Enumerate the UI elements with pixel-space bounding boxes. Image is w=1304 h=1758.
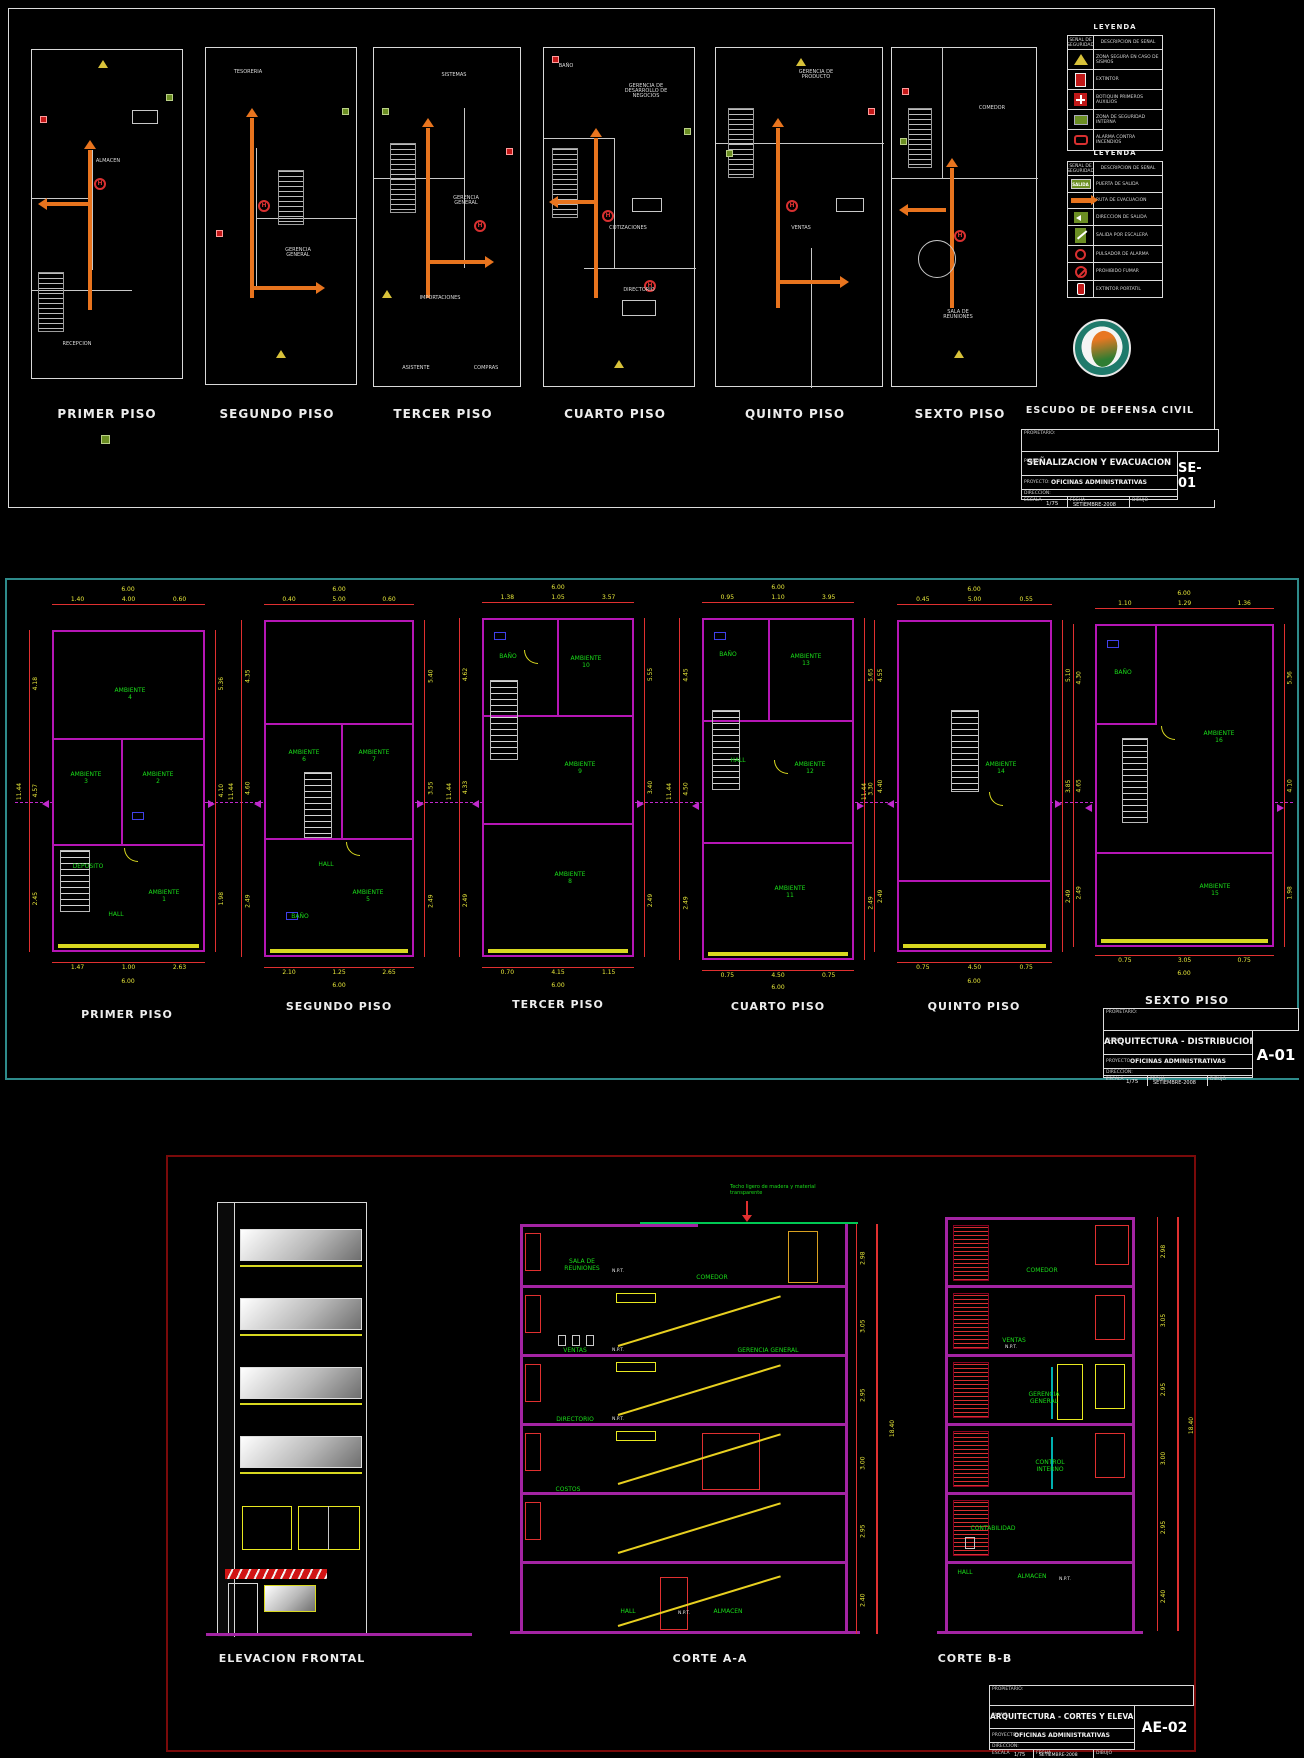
extintor-icon bbox=[1068, 70, 1094, 89]
plan-title-tercer-piso: TERCER PISO bbox=[393, 407, 492, 421]
evac-plan-tercer-piso: H SISTEMAS GERENCIA GENERAL IMPORTACIONE… bbox=[373, 47, 521, 387]
tb-plano-label: PLANO: bbox=[1106, 1038, 1123, 1043]
sill-line bbox=[240, 1265, 362, 1267]
wall-partition bbox=[266, 838, 412, 840]
view-title-corte-aa: CORTE A-A bbox=[673, 1652, 748, 1665]
room-label: GERENCIA GENERAL bbox=[738, 1348, 799, 1355]
room-label: AMBIENTE 2 bbox=[140, 772, 176, 785]
dim-value: 2.98 bbox=[1129, 1246, 1198, 1257]
tb-propietario-label: PROPIETARIO: bbox=[1106, 1010, 1137, 1015]
fixture bbox=[1107, 640, 1119, 648]
section-marker bbox=[472, 800, 479, 808]
legend-desc: BOTIQUIN PRIMEROS AUXILIOS bbox=[1094, 94, 1162, 106]
dim-value: 0.70 bbox=[482, 970, 533, 976]
alarma-icon bbox=[1068, 130, 1094, 150]
legend-col-desc: DESCRIPCION DE SEÑAL bbox=[1094, 165, 1162, 172]
zona-segura-sign-icon bbox=[98, 60, 108, 68]
room-label: BAÑO bbox=[291, 914, 308, 921]
window-section bbox=[1095, 1295, 1125, 1340]
plan-title-sexto-piso: SEXTO PISO bbox=[1145, 994, 1229, 1007]
room-label: BAÑO bbox=[559, 64, 574, 69]
dim-value: 0.45 bbox=[897, 597, 949, 605]
room-label: GERENCIA GENERAL bbox=[276, 248, 320, 258]
room-label: AMBIENTE 12 bbox=[792, 762, 828, 775]
room-label: ASISTENTE bbox=[402, 366, 429, 371]
tb-propietario-row: PROPIETARIO: bbox=[990, 1686, 1193, 1706]
evac-arrowhead bbox=[422, 118, 434, 127]
floor-slab bbox=[945, 1492, 1135, 1495]
tb-plano-label: PLANO: bbox=[992, 1713, 1009, 1718]
chair-section bbox=[586, 1335, 594, 1346]
room-label: BAÑO bbox=[719, 652, 736, 659]
door-swing bbox=[989, 792, 1003, 806]
zona-segura-sign-icon bbox=[614, 360, 624, 368]
dim-total-left: 11.44 bbox=[666, 783, 673, 800]
room-label: BAÑO bbox=[499, 654, 516, 661]
legend-desc: RUTA DE EVACUACION bbox=[1094, 197, 1162, 204]
legend-row: RUTA DE EVACUACION bbox=[1068, 193, 1162, 209]
dim-value: 2.40 bbox=[828, 1594, 896, 1605]
door-swing bbox=[346, 842, 360, 856]
hidrante-symbol: H bbox=[94, 178, 106, 190]
evac-plan-sexto-piso: H COMEDOR SALA DE REUNIONES bbox=[891, 47, 1037, 387]
tb-fecha-value: SETIEMBRE-2008 bbox=[1073, 502, 1116, 508]
plan-title-sexto-piso: SEXTO PISO bbox=[915, 407, 1006, 421]
wall-partition bbox=[1097, 723, 1157, 725]
plan-title-cuarto-piso: CUARTO PISO bbox=[731, 1000, 825, 1013]
dim-value: 1.29 bbox=[1155, 601, 1215, 609]
dim-value: 2.10 bbox=[264, 970, 314, 976]
tb-direccion-label: DIRECCION: bbox=[1106, 1070, 1133, 1075]
floor-slab bbox=[945, 1561, 1135, 1564]
wall-partition bbox=[557, 620, 559, 715]
room-label: GERENCIA GENERAL bbox=[444, 196, 488, 206]
dim-value: 0.55 bbox=[1000, 597, 1052, 605]
dim-value: 4.33 bbox=[409, 782, 522, 793]
plan-title-quinto-piso: QUINTO PISO bbox=[928, 1000, 1021, 1013]
wall-partition bbox=[341, 723, 343, 838]
legend-desc: SALIDA POR ESCALERA bbox=[1094, 232, 1162, 239]
tb-escala-value: 1/75 bbox=[1126, 1079, 1138, 1085]
fixture bbox=[714, 632, 726, 640]
escudo-defensa-civil-logo bbox=[1073, 319, 1131, 377]
dim-value: 3.05 bbox=[1129, 1315, 1198, 1326]
stairs bbox=[490, 680, 518, 760]
evac-route-arrow bbox=[426, 128, 430, 298]
entry-door bbox=[228, 1583, 258, 1634]
room-label: SISTEMAS bbox=[442, 73, 467, 78]
legend-desc: EXTINTOR bbox=[1094, 76, 1162, 83]
second-floor-window bbox=[242, 1506, 292, 1550]
corte-bb-drawing: COMEDOR VENTAS GERENCIA GENERAL CONTROL … bbox=[945, 1217, 1195, 1642]
dim-value: 1.05 bbox=[533, 595, 584, 603]
evac-arrowhead bbox=[590, 128, 602, 137]
npt-label: N.P.T. bbox=[612, 1348, 624, 1353]
tb-propietario-row: PROPIETARIO: bbox=[1104, 1009, 1298, 1031]
dim-rail-left: 4.454.502.49 bbox=[679, 618, 691, 960]
chair-section bbox=[572, 1335, 580, 1346]
dim-total-top: 6.00 bbox=[332, 586, 345, 593]
plan-title-cuarto-piso: CUARTO PISO bbox=[564, 407, 666, 421]
stair-flight bbox=[618, 1575, 781, 1627]
tb-plano-value: ARQUITECTURA - CORTES Y ELEVACION bbox=[990, 1712, 1134, 1721]
dim-rail-top: 1.381.053.57 bbox=[482, 602, 634, 603]
dim-value: 2.95 bbox=[1129, 1384, 1198, 1395]
room-label: HALL bbox=[318, 862, 333, 869]
sill-line bbox=[240, 1334, 362, 1336]
salida-sign-icon bbox=[726, 150, 733, 157]
floor-slab bbox=[945, 1354, 1135, 1357]
zona-segura-sign-icon bbox=[276, 350, 286, 358]
tb-escala-label: ESCALA bbox=[1024, 498, 1042, 503]
note-arrowhead bbox=[742, 1215, 752, 1222]
stairs bbox=[728, 108, 754, 178]
recycle-icon bbox=[101, 435, 110, 444]
prohibido-fumar-icon bbox=[1068, 263, 1094, 280]
room-label: AMBIENTE 11 bbox=[772, 886, 808, 899]
dim-value: 4.10 bbox=[1237, 780, 1304, 791]
base-slab bbox=[937, 1631, 1143, 1634]
titleblock-se01: PROPIETARIO: PLANO:SEÑALIZACION Y EVACUA… bbox=[1021, 429, 1219, 500]
legend-senal-title: LEYENDA bbox=[1093, 149, 1136, 157]
room-label: GERENCIA DE PRODUCTO bbox=[794, 70, 838, 80]
dim-value: 2.49 bbox=[409, 895, 522, 906]
tb-dibujo-label: DIBUJO bbox=[1210, 1077, 1226, 1082]
room-label: AMBIENTE 7 bbox=[356, 750, 392, 763]
dim-rail-bottom: 0.754.500.75 bbox=[702, 970, 854, 979]
salida-badge-icon: SALIDA bbox=[1068, 176, 1094, 192]
dim-rail-right: 5.364.101.98 bbox=[1284, 624, 1296, 947]
dim-value: 2.95 bbox=[1129, 1522, 1198, 1533]
npt-label: N.P.T. bbox=[612, 1417, 624, 1422]
facade-wall bbox=[903, 944, 1046, 948]
wall-segment bbox=[811, 248, 812, 388]
dim-value: 1.10 bbox=[753, 595, 804, 603]
dim-rail-top: 0.455.000.55 bbox=[897, 604, 1052, 605]
ruta-evacuacion-icon bbox=[1068, 193, 1094, 208]
dim-rail-left: 4.354.602.49 bbox=[241, 620, 253, 957]
hidrante-symbol: H bbox=[474, 220, 486, 232]
legend-row: EXTINTOR bbox=[1068, 70, 1162, 90]
dim-value: 0.40 bbox=[264, 597, 314, 605]
stair-flight bbox=[618, 1295, 781, 1347]
dim-value: 2.63 bbox=[154, 965, 205, 971]
dim-value: 1.36 bbox=[1214, 601, 1274, 609]
tb-fecha-value: SETIEMBRE-2008 bbox=[1153, 1080, 1196, 1086]
dim-rail-bottom: 0.704.151.15 bbox=[482, 967, 634, 976]
sheet-a01: AMBIENTE 4 AMBIENTE 3 AMBIENTE 2 DEPOSIT… bbox=[5, 578, 1299, 1080]
dim-value: 0.75 bbox=[1214, 958, 1274, 964]
tb-direccion-label: DIRECCION: bbox=[1024, 491, 1051, 496]
dim-value: 1.00 bbox=[103, 965, 154, 971]
room-label: CONTROL INTERNO bbox=[1032, 1460, 1068, 1473]
room-label: AMBIENTE 16 bbox=[1201, 731, 1237, 744]
railing bbox=[616, 1362, 656, 1372]
section-marker bbox=[417, 800, 424, 808]
dim-value: 0.95 bbox=[702, 595, 753, 603]
wall-segment bbox=[892, 178, 1038, 179]
dim-value: 5.00 bbox=[314, 597, 364, 605]
dim-total-top: 6.00 bbox=[967, 586, 980, 593]
dim-value: 3.00 bbox=[1129, 1453, 1198, 1464]
botiquin-sign-icon bbox=[216, 230, 223, 237]
dim-value: 4.30 bbox=[1026, 672, 1134, 683]
room-label: ALMACEN bbox=[1017, 1574, 1046, 1581]
dim-rail-top: 1.404.000.60 bbox=[52, 604, 205, 605]
roof-note: Techo ligero de madera y material transp… bbox=[730, 1185, 822, 1196]
storefront-window bbox=[264, 1585, 316, 1612]
legend-desc: PUERTA DE SALIDA bbox=[1094, 181, 1162, 188]
railing bbox=[616, 1293, 656, 1303]
room-label: AMBIENTE 8 bbox=[552, 872, 588, 885]
legend-header-row: SEÑAL DE SEGURIDAD DESCRIPCION DE SEÑAL bbox=[1068, 36, 1162, 50]
plan-title-primer-piso: PRIMER PISO bbox=[81, 1008, 173, 1021]
hidrante-symbol: H bbox=[786, 200, 798, 212]
tb-plano-value: SEÑALIZACION Y EVACUACION bbox=[1022, 458, 1176, 468]
floor-slab bbox=[945, 1423, 1135, 1426]
dim-rail-left: 4.624.332.49 bbox=[459, 618, 471, 957]
salida-sign-icon bbox=[342, 108, 349, 115]
room-label: COTIZACIONES bbox=[609, 226, 647, 231]
legend-desc: EXTINTOR PORTATIL bbox=[1094, 286, 1162, 293]
legend-row: ZONA DE SEGURIDAD INTERNA bbox=[1068, 110, 1162, 130]
dim-rail-bottom: 1.471.002.63 bbox=[52, 962, 205, 971]
dim-value: 1.40 bbox=[52, 597, 103, 605]
evac-arrowhead bbox=[772, 118, 784, 127]
legend-desc: PROHIBIDO FUMAR bbox=[1094, 268, 1162, 275]
dim-value: 4.40 bbox=[825, 781, 936, 792]
facade-wall bbox=[708, 952, 848, 956]
wall-segment bbox=[464, 108, 465, 268]
tb-plano-label: PLANO: bbox=[1024, 459, 1041, 464]
room-label: COSTOS bbox=[556, 1487, 581, 1494]
dim-value: 4.45 bbox=[629, 670, 743, 681]
pulsador-alarma-icon bbox=[1068, 246, 1094, 262]
window-section bbox=[525, 1364, 541, 1402]
facade-wall bbox=[488, 949, 628, 953]
room-label: HALL bbox=[108, 912, 123, 919]
room-label: SALA DE REUNIONES bbox=[936, 310, 980, 320]
room-label: COMEDOR bbox=[1026, 1268, 1057, 1275]
section-marker bbox=[637, 800, 644, 808]
evac-arrowhead bbox=[840, 276, 849, 288]
room-label: COMEDOR bbox=[696, 1275, 727, 1282]
room-label: IMPORTACIONES bbox=[420, 296, 461, 301]
desk bbox=[632, 198, 662, 212]
evac-route-arrow bbox=[46, 202, 88, 206]
sheet-code-se01: SE-01 bbox=[1177, 452, 1219, 500]
facade-wall bbox=[58, 944, 199, 948]
tb-direccion-label: DIRECCION: bbox=[992, 1744, 1019, 1749]
direccion-salida-icon bbox=[1068, 209, 1094, 225]
room-label: AMBIENTE 13 bbox=[788, 654, 824, 667]
dim-rail-top: 0.951.103.95 bbox=[702, 602, 854, 603]
section-marker bbox=[1085, 804, 1092, 812]
dim-value: 1.98 bbox=[1237, 888, 1304, 899]
dim-value: 2.98 bbox=[828, 1253, 896, 1264]
tb-proyecto-label: PROYECTO: bbox=[992, 1733, 1018, 1738]
tb-escala-cell: ESCALA1/75 bbox=[990, 1750, 1034, 1758]
dim-total-bottom: 6.00 bbox=[551, 982, 564, 989]
stairs bbox=[908, 108, 932, 168]
dim-total-top: 6.00 bbox=[771, 584, 784, 591]
legend-col-symbol: SEÑAL DE SEGURIDAD bbox=[1068, 36, 1094, 49]
tb-escala-cell: ESCALA1/75 bbox=[1022, 497, 1068, 508]
legend-row: SALIDA POR ESCALERA bbox=[1068, 226, 1162, 246]
dim-value: 2.45 bbox=[0, 893, 89, 904]
dim-total-bottom: 6.00 bbox=[967, 978, 980, 985]
legend-col-symbol: SEÑAL DE SEGURIDAD bbox=[1068, 162, 1094, 175]
hidrante-symbol: H bbox=[258, 200, 270, 212]
evac-route-arrow bbox=[556, 200, 594, 204]
stairs bbox=[951, 710, 979, 792]
legend-header-row: SEÑAL DE SEGURIDAD DESCRIPCION DE SEÑAL bbox=[1068, 162, 1162, 176]
botiquin-sign-icon bbox=[552, 56, 559, 63]
npt-label: N.P.T. bbox=[678, 1611, 690, 1616]
elevacion-frontal-drawing bbox=[217, 1202, 367, 1636]
dim-value: 5.36 bbox=[1237, 672, 1304, 683]
zona-segura-sign-icon bbox=[796, 58, 806, 66]
sheet-ae02: SALA DE REUNIONES COMEDOR VENTAS GERENCI… bbox=[166, 1155, 1196, 1752]
railing bbox=[616, 1431, 656, 1441]
zona-seguridad-icon bbox=[1068, 110, 1094, 129]
meeting-table bbox=[622, 300, 656, 316]
dim-value: 0.75 bbox=[1000, 965, 1052, 971]
dim-value: 1.47 bbox=[52, 965, 103, 971]
tb-proyecto-label: PROYECTO: bbox=[1024, 480, 1050, 485]
room-label: AMBIENTE 10 bbox=[568, 656, 604, 669]
legend-row: DIRECCION DE SALIDA bbox=[1068, 209, 1162, 226]
titleblock-ae02: PROPIETARIO: PLANO:ARQUITECTURA - CORTES… bbox=[989, 1685, 1194, 1750]
window-band bbox=[240, 1298, 362, 1330]
legend-evac-table: SEÑAL DE SEGURIDAD DESCRIPCION DE SEÑAL … bbox=[1067, 35, 1163, 151]
desk bbox=[132, 110, 158, 124]
wall-partition bbox=[266, 723, 412, 725]
window-section bbox=[1095, 1364, 1125, 1409]
top-slab bbox=[945, 1217, 1135, 1220]
dim-total-left: 11.44 bbox=[861, 783, 868, 800]
dim-total-bottom: 6.00 bbox=[121, 978, 134, 985]
wall-segment bbox=[374, 178, 464, 179]
npt-label: N.P.T. bbox=[612, 1269, 624, 1274]
stair-flight bbox=[618, 1502, 781, 1554]
stairs bbox=[390, 143, 416, 213]
door-section bbox=[788, 1231, 818, 1283]
level-total-line bbox=[876, 1224, 878, 1634]
zona-segura-icon bbox=[1068, 50, 1094, 69]
legend-row: ZONA SEGURA EN CASO DE SISMOS bbox=[1068, 50, 1162, 70]
top-slab bbox=[520, 1224, 698, 1227]
wall-segment bbox=[942, 48, 943, 178]
dim-value: 3.95 bbox=[803, 595, 854, 603]
window-band bbox=[240, 1229, 362, 1261]
dim-value: 4.50 bbox=[949, 965, 1001, 971]
room-label: AMBIENTE 15 bbox=[1197, 884, 1233, 897]
chair-section bbox=[558, 1335, 566, 1346]
section-marker bbox=[887, 800, 894, 808]
room-label: COMEDOR bbox=[979, 106, 1005, 111]
tb-fecha-cell: FECHASETIEMBRE-2008 bbox=[1068, 497, 1130, 508]
room-label: VENTAS bbox=[791, 226, 811, 231]
ground-line bbox=[206, 1633, 472, 1636]
evac-arrowhead bbox=[38, 198, 47, 210]
tb-proyecto-label: PROYECTO: bbox=[1106, 1059, 1132, 1064]
room-label: AMBIENTE 14 bbox=[983, 762, 1019, 775]
base-slab bbox=[510, 1631, 860, 1634]
wall-partition bbox=[768, 620, 770, 720]
dim-total-left: 11.44 bbox=[16, 783, 23, 800]
dim-value: 4.50 bbox=[753, 973, 804, 979]
corte-aa-drawing: SALA DE REUNIONES COMEDOR VENTAS GERENCI… bbox=[520, 1217, 910, 1642]
wall-partition bbox=[121, 738, 123, 846]
legend-row: BOTIQUIN PRIMEROS AUXILIOS bbox=[1068, 90, 1162, 110]
room-label: HALL bbox=[730, 758, 745, 765]
plan-title-primer-piso: PRIMER PISO bbox=[57, 407, 156, 421]
dim-value: 0.75 bbox=[803, 973, 854, 979]
tb-escala-cell: ESCALA1/75 bbox=[1104, 1076, 1148, 1086]
salida-sign-icon bbox=[382, 108, 389, 115]
legend-row: PROHIBIDO FUMAR bbox=[1068, 263, 1162, 281]
evac-arrowhead bbox=[485, 256, 494, 268]
evac-arrowhead bbox=[899, 204, 908, 216]
dim-rail-left: 4.184.572.45 bbox=[29, 630, 41, 952]
dim-value: 4.57 bbox=[0, 785, 89, 796]
evac-route-arrow bbox=[430, 260, 485, 264]
evac-route-arrow bbox=[254, 286, 316, 290]
zona-segura-sign-icon bbox=[382, 290, 392, 298]
dim-total-bottom: 6.00 bbox=[1177, 970, 1190, 977]
door-section bbox=[660, 1577, 688, 1630]
evac-plan-quinto-piso: H GERENCIA DE PRODUCTO VENTAS bbox=[715, 47, 883, 387]
botiquin-sign-icon bbox=[40, 116, 47, 123]
stair-section bbox=[953, 1293, 989, 1349]
window-section bbox=[1095, 1433, 1125, 1478]
evac-arrowhead bbox=[84, 140, 96, 149]
stair-section bbox=[953, 1362, 989, 1418]
extintor-portatil-icon bbox=[1068, 281, 1094, 297]
facade-wall bbox=[270, 949, 408, 953]
stair-section bbox=[953, 1431, 989, 1487]
chair-section bbox=[965, 1537, 975, 1549]
tb-dibujo-label: DIBUJO bbox=[1132, 498, 1148, 503]
dim-rail-left: 4.304.652.49 bbox=[1073, 624, 1085, 947]
dim-rail-top: 1.101.291.36 bbox=[1095, 608, 1274, 609]
salida-sign-icon bbox=[684, 128, 691, 135]
level-dim-chain: 2.983.052.953.002.952.40 bbox=[856, 1224, 868, 1634]
floor-slab bbox=[945, 1285, 1135, 1288]
wall-segment bbox=[544, 138, 614, 139]
escudo-label: ESCUDO DE DEFENSA CIVIL bbox=[1026, 405, 1194, 416]
dim-value: 4.15 bbox=[533, 970, 584, 976]
room-label: AMBIENTE 6 bbox=[286, 750, 322, 763]
tb-dibujo-cell: DIBUJO bbox=[1094, 1750, 1193, 1758]
sheet-se01: H ALMACEN RECEPCION H TESORERIA GERENCIA… bbox=[8, 8, 1215, 508]
view-title-elevacion: ELEVACION FRONTAL bbox=[219, 1652, 366, 1665]
tb-escala-value: 1/75 bbox=[1046, 501, 1058, 507]
botiquin-sign-icon bbox=[902, 88, 909, 95]
wall-partition bbox=[704, 842, 852, 844]
window-section bbox=[525, 1502, 541, 1540]
section-marker bbox=[1055, 800, 1062, 808]
room-label: AMBIENTE 9 bbox=[562, 762, 598, 775]
facade-wall bbox=[1101, 939, 1268, 943]
sheet-code-a01: A-01 bbox=[1252, 1031, 1299, 1078]
dim-total-bottom: 6.00 bbox=[771, 984, 784, 991]
floor-slab bbox=[520, 1285, 848, 1288]
dim-rail-bottom: 0.753.050.75 bbox=[1095, 955, 1274, 964]
room-label: DEPOSITO bbox=[73, 864, 104, 871]
second-floor-window bbox=[298, 1506, 360, 1550]
